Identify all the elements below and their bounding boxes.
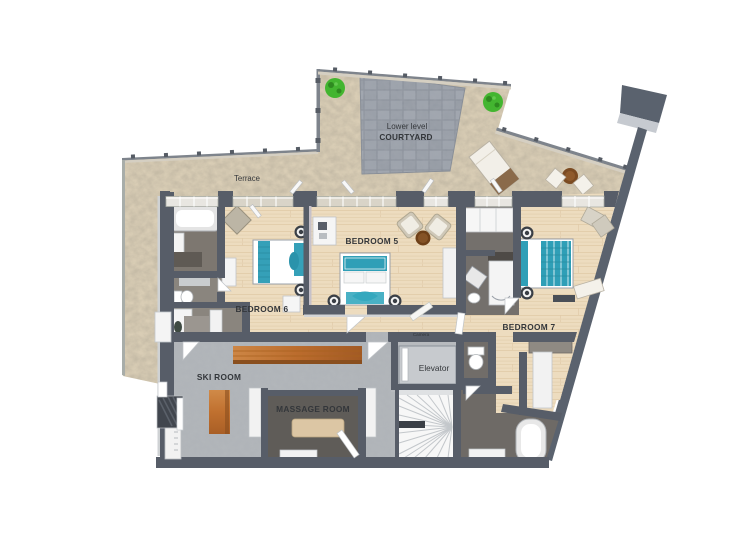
- svg-text:Camera: Camera: [413, 332, 430, 337]
- svg-text:BEDROOM 7: BEDROOM 7: [503, 322, 556, 332]
- svg-text:BEDROOM 6: BEDROOM 6: [236, 304, 289, 314]
- svg-text:MASSAGE ROOM: MASSAGE ROOM: [276, 404, 350, 414]
- svg-text:BEDROOM 5: BEDROOM 5: [346, 236, 399, 246]
- svg-text:Elevator: Elevator: [419, 363, 450, 373]
- svg-text:Terrace: Terrace: [234, 174, 260, 183]
- svg-text:Lower level: Lower level: [387, 122, 428, 131]
- svg-text:COURTYARD: COURTYARD: [379, 133, 432, 142]
- svg-text:SKI ROOM: SKI ROOM: [197, 372, 241, 382]
